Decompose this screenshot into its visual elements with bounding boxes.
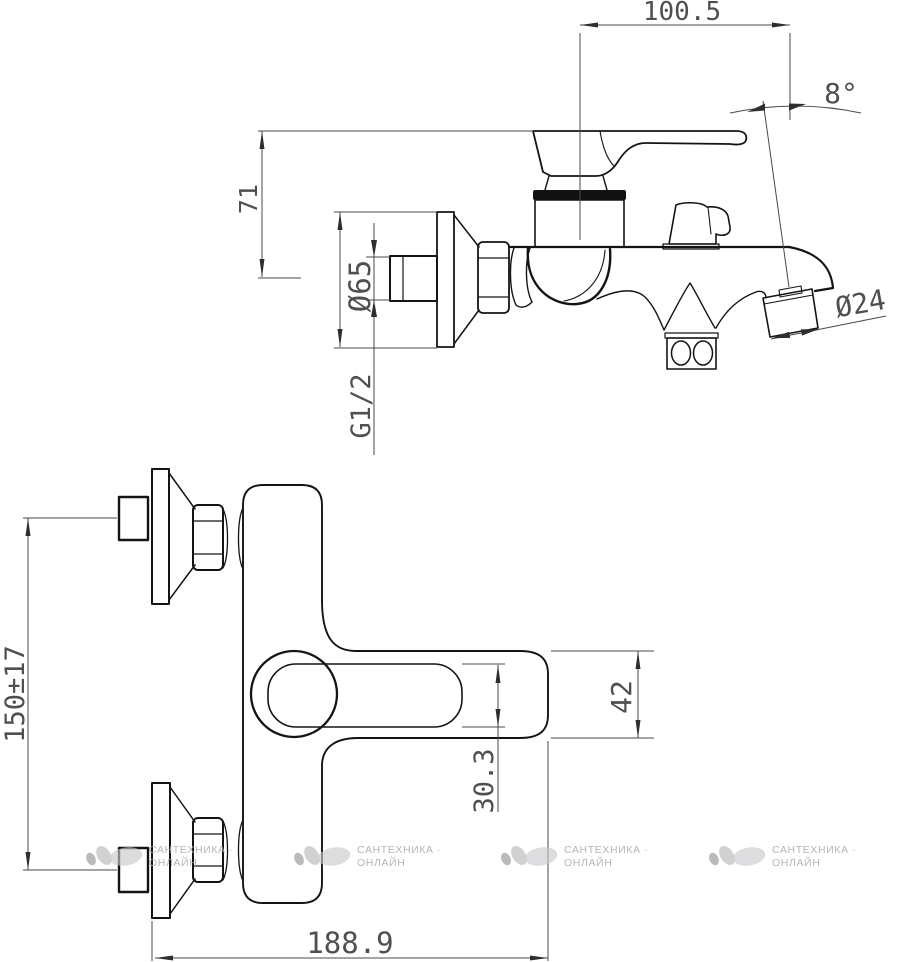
watermark-text-line2: ОНЛАЙН (772, 856, 820, 869)
background (0, 0, 904, 962)
dim-inlet-centers-label: 150±17 (0, 645, 31, 743)
dim-spout-angle-label: 8° (824, 77, 858, 110)
dim-handle-height-label: 42 (605, 680, 638, 714)
watermark-text-line2: ОНЛАЙН (564, 856, 612, 869)
watermark-text-line2: ОНЛАЙН (357, 856, 405, 869)
drawing-canvas: 100.5 8° 71 Ø65 (0, 0, 904, 962)
dim-escutcheon-diameter-label: Ø65 (343, 260, 377, 312)
watermark-text-line1: САНТЕХНИКА · (564, 844, 648, 856)
faucet-technical-drawing: 100.5 8° 71 Ø65 (0, 0, 904, 962)
dim-top-width-label: 100.5 (643, 0, 721, 27)
watermark-text-line1: САНТЕХНИКА · (357, 844, 441, 856)
dim-wall-to-top-label: 71 (234, 184, 263, 214)
watermark-text-line2: ОНЛАЙН (149, 856, 197, 869)
dim-lever-height-label: 30.3 (469, 748, 500, 813)
dim-overall-length-label: 188.9 (306, 926, 393, 960)
watermark-text-line1: САНТЕХНИКА · (149, 844, 233, 856)
watermark-text-line1: САНТЕХНИКА · (772, 844, 856, 856)
dim-thread-size-label: G1/2 (346, 373, 377, 438)
